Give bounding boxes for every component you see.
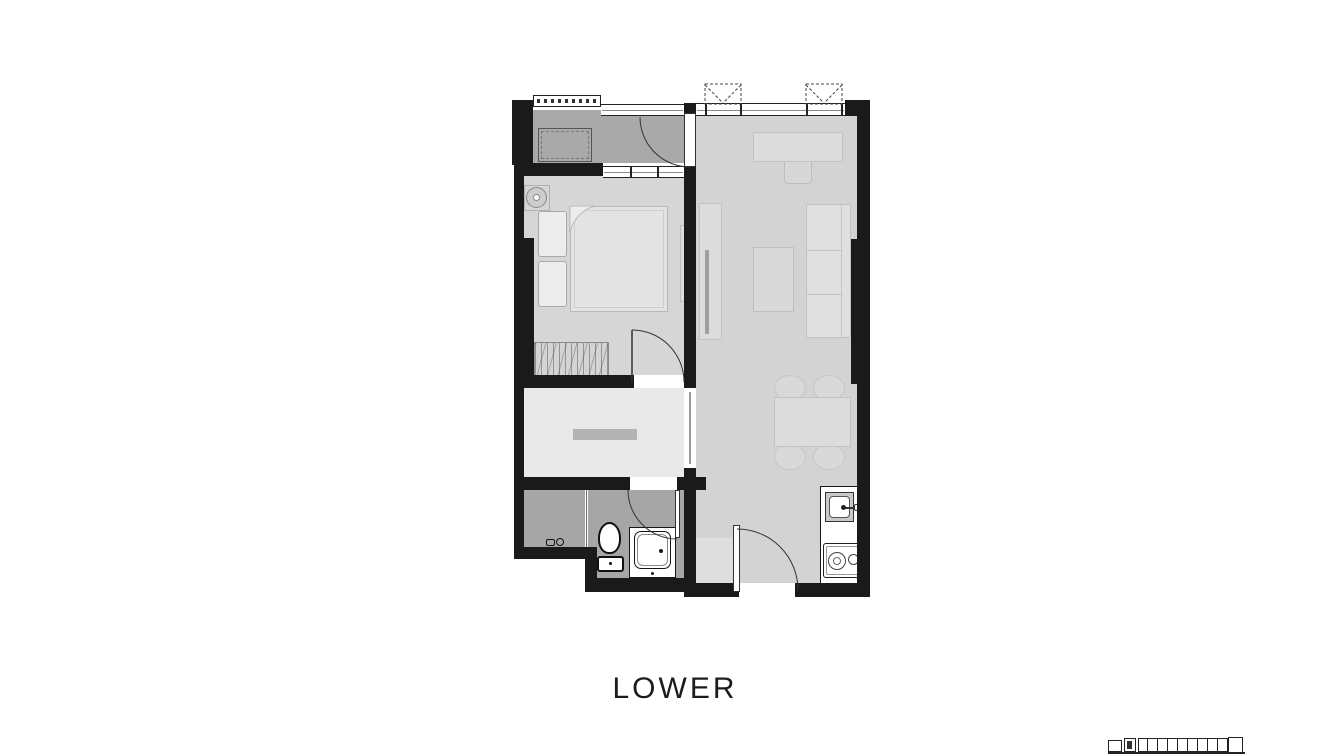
wall-segment [677,477,706,490]
toilet-bowl [598,522,621,554]
ac-unit [538,128,592,162]
floor-plan [510,80,880,610]
building-keyplan [1108,737,1248,754]
keyplan-block [1108,740,1122,752]
wall-segment [514,165,524,238]
sofa [806,204,851,338]
entry-door-leaf [733,525,740,592]
bed-inner-line [574,210,664,308]
keyplan-units-row [1138,738,1228,752]
vent-hood-symbol [705,84,741,104]
vanity-basin [634,531,671,569]
ac-unit-inner [541,131,589,159]
window-mid-line [604,172,683,173]
dining-chair [813,444,845,470]
vanity-faucet-dot [659,549,663,553]
page: { "title": { "label": "LOWER" }, "colors… [0,0,1342,754]
keyplan-unit-cell [1138,738,1148,752]
ceiling-fan-hub [533,194,540,201]
bed [570,206,668,312]
sofa-back-line [841,205,842,337]
floor-label: LOWER [575,672,775,706]
wall-segment [514,375,524,480]
keyplan-unit-cell [1218,738,1228,752]
window-mullion [630,167,632,177]
window-mullion [806,104,808,115]
window-mid-line [602,110,683,111]
balcony-rail-window [601,104,684,116]
pillow [538,211,567,257]
wall-segment [514,477,630,490]
wall-segment [851,239,870,384]
keyplan-end-block [1228,737,1243,753]
tv [705,250,709,334]
burner-large-inner [833,557,841,565]
wall-segment [590,578,686,592]
living-window [696,103,845,116]
bathroom-door-leaf [675,490,680,538]
window-mullion [841,104,843,115]
bedroom-window [603,166,684,178]
coffee-table [753,247,794,312]
dining-chair [774,444,806,470]
wall-segment [857,384,870,597]
sofa-cushion-line [807,250,843,251]
sofa-cushion-line [807,294,843,295]
wardrobe [534,342,609,378]
pillow [538,261,567,307]
window-mullion [740,104,742,115]
shower-floor [524,490,585,547]
wall-segment [514,238,534,375]
keyplan-unit-cell [1178,738,1188,752]
louver-slats [537,99,597,103]
sliding-door-line [689,392,691,464]
keyplan-unit-cell [1198,738,1208,752]
dining-table [774,397,851,447]
wall-segment [512,100,533,165]
wall-segment [684,166,696,388]
shower-partition-line [586,490,587,547]
hall-shelf [573,429,637,440]
keyplan-unit-cell [1148,738,1158,752]
wall-segment [684,583,739,597]
keyplan-unit-cell [1158,738,1168,752]
window-mid-line [697,110,844,111]
window-mullion [657,167,659,177]
shower-handle-icon [556,538,564,546]
entry-mat [693,538,734,583]
wall-segment [514,547,592,559]
wall-segment [514,375,634,388]
keyplan-unit-highlight [1124,738,1136,752]
keyplan-unit-marker [1127,741,1132,749]
desk [753,132,843,162]
vent-hood-symbol [806,84,842,104]
keyplan-unit-cell [1188,738,1198,752]
balcony-louver [533,95,601,107]
tv-cabinet [699,203,722,340]
balcony-door-leaf [684,113,696,167]
window-mullion [705,104,707,115]
wall-segment [514,163,603,176]
wall-segment [845,100,870,116]
kitchen-sink [825,492,854,522]
vanity-basin-inner [637,534,668,566]
vanity-drain-dot [651,572,654,575]
keyplan-unit-cell [1208,738,1218,752]
wall-segment [857,100,870,239]
shower-drain-icon [546,539,555,546]
keyplan-unit-cell [1168,738,1178,752]
faucet-dot [841,505,846,510]
toilet-button [609,562,612,565]
